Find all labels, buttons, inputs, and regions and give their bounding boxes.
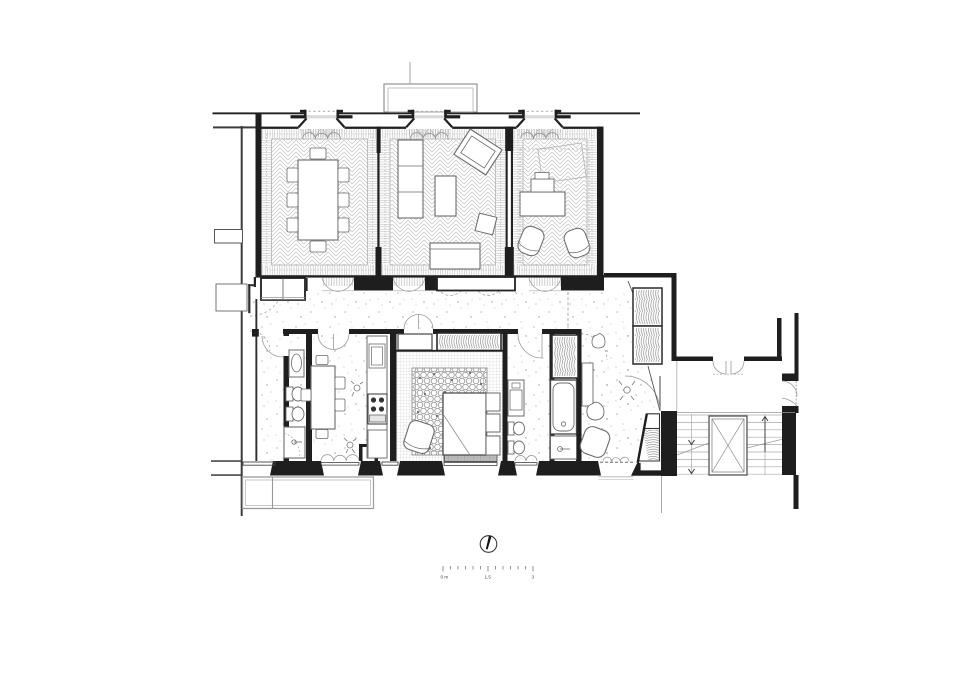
svg-text:3: 3 [532, 575, 535, 580]
svg-text:0 m: 0 m [441, 575, 449, 580]
svg-text:1,5: 1,5 [485, 575, 492, 580]
